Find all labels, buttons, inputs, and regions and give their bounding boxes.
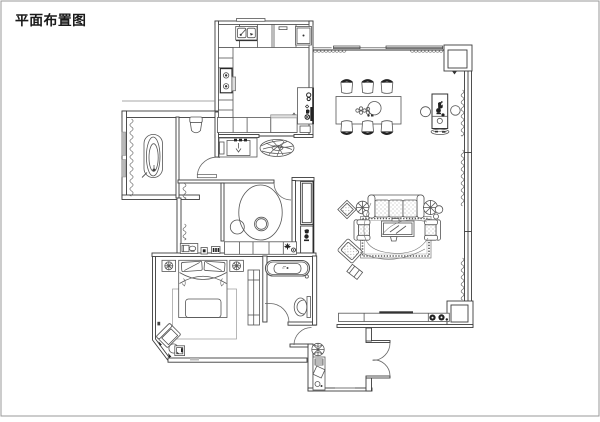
svg-text:平面布置图: 平面布置图 <box>15 12 86 28</box>
